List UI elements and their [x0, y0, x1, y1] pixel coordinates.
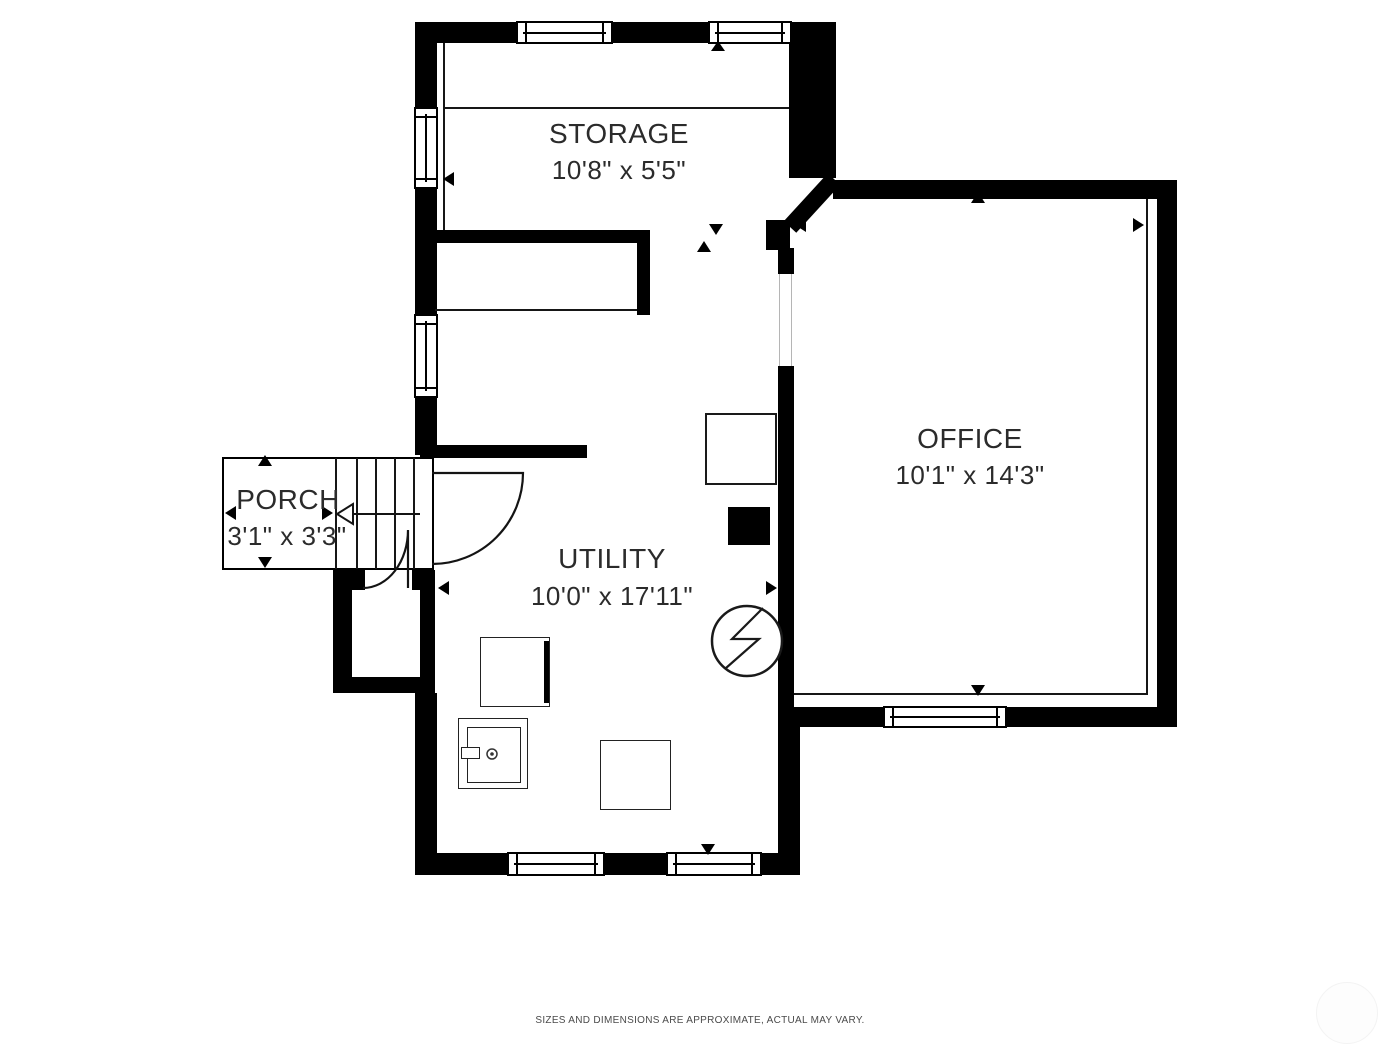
entry-interior-wall — [420, 445, 587, 458]
plan-symbol-overlay — [0, 0, 1400, 1050]
stair-tread-4 — [413, 458, 415, 569]
window-bottom-2 — [666, 852, 762, 876]
dimension-arrow-office-left — [795, 218, 806, 232]
office-knee-wall-line-horizontal — [794, 693, 1148, 695]
footer-disclaimer: SIZES AND DIMENSIONS ARE APPROXIMATE, AC… — [0, 1015, 1400, 1026]
office-knee-wall-line-vertical — [1146, 199, 1148, 695]
closet-wall-return — [637, 243, 650, 315]
washer-detergent-tray — [461, 747, 480, 759]
office-wall-top — [833, 180, 1177, 199]
dimension-arrow-utility-left — [438, 581, 449, 595]
stair-tread-3 — [394, 458, 396, 569]
window-bottom-1 — [507, 852, 605, 876]
office-corner-diagonal-wall — [790, 179, 834, 227]
porch-dimensions: 3'1" x 3'3" — [227, 521, 346, 552]
duct-solid-square — [728, 507, 770, 545]
utility-office-wall-upper — [778, 248, 794, 274]
utility-room-dimensions: 10'0" x 17'11" — [531, 581, 693, 612]
dimension-arrow-utility-top — [697, 241, 711, 252]
window-office-bottom — [883, 706, 1007, 728]
water-heater-square — [705, 413, 777, 485]
chimney-flue — [352, 590, 420, 677]
exterior-wall-left-lower — [415, 693, 437, 875]
utility-room-label: UTILITY — [558, 543, 666, 575]
dimension-arrow-storage-bottom — [709, 224, 723, 235]
storage-knee-wall-line-horizontal — [443, 107, 789, 109]
stair-tread-1 — [356, 458, 358, 569]
dryer — [480, 637, 550, 707]
window-top-2 — [708, 21, 792, 44]
window-top-1 — [516, 21, 613, 44]
electrical-panel-icon — [712, 606, 782, 676]
office-room-label: OFFICE — [917, 423, 1023, 455]
stair-tread-2 — [375, 458, 377, 569]
utility-wall-right-lower — [778, 707, 800, 875]
wall-opening-jamb-left — [779, 274, 780, 366]
utility-office-wall-lower — [778, 366, 794, 707]
dryer-hinge-bar — [544, 641, 549, 703]
storage-room-label: STORAGE — [549, 118, 689, 150]
porch-label: PORCH — [236, 484, 340, 516]
appliance-square — [600, 740, 671, 810]
storage-right-wall-block — [789, 22, 836, 178]
closet-bottom-line — [435, 309, 637, 311]
window-left-2 — [414, 314, 438, 398]
lightning-bolt-icon — [726, 608, 763, 668]
watermark-circle — [1316, 982, 1378, 1044]
office-wall-right — [1157, 180, 1177, 727]
chimney — [333, 570, 435, 693]
corner-wall-post — [766, 220, 790, 250]
dimension-arrow-office-right — [1133, 218, 1144, 232]
wall-opening-jamb-right — [791, 274, 792, 366]
storage-knee-wall-line-vertical — [443, 43, 445, 230]
dimension-arrow-utility-right — [766, 581, 777, 595]
storage-room-dimensions: 10'8" x 5'5" — [552, 155, 686, 186]
closet-wall-top — [433, 230, 650, 243]
floor-plan: STORAGE 10'8" x 5'5" OFFICE 10'1" x 14'3… — [0, 0, 1400, 1050]
office-room-dimensions: 10'1" x 14'3" — [895, 460, 1044, 491]
utility-door-swing-icon — [432, 473, 523, 564]
chimney-door-notch — [365, 570, 412, 590]
window-left-1 — [414, 107, 438, 189]
